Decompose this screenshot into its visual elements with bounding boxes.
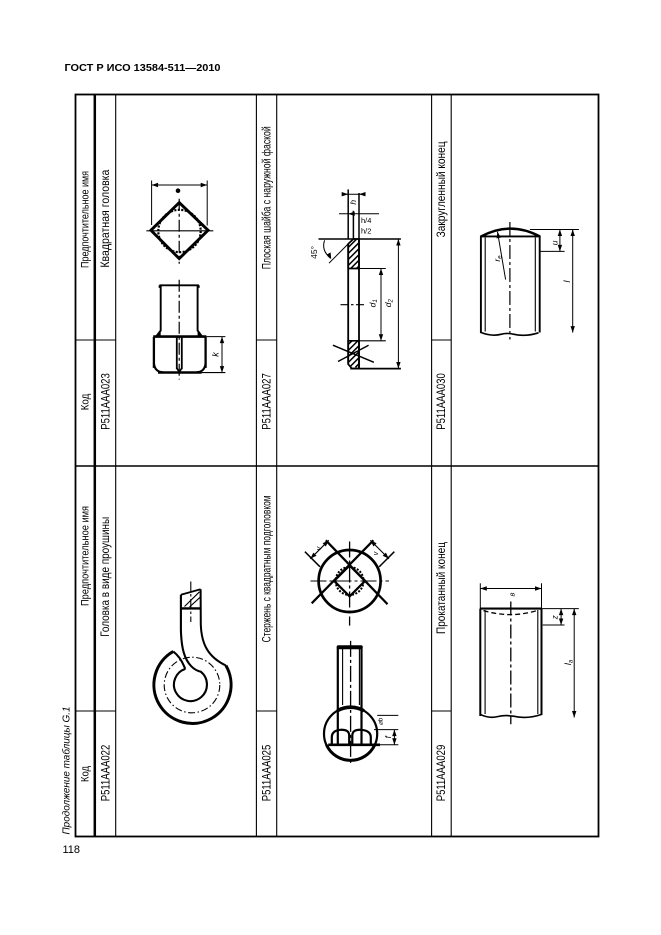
svg-text:118: 118 <box>63 844 81 856</box>
svg-text:Продолжение таблицы G.1: Продолжение таблицы G.1 <box>61 707 73 835</box>
svg-text:v: v <box>373 551 380 555</box>
svg-text:Закругленный конец: Закругленный конец <box>436 141 448 237</box>
svg-text:Стержень с квадратным подголов: Стержень с квадратным подголовком <box>261 495 273 642</box>
svg-text:Код: Код <box>80 393 92 410</box>
svg-text:Плоская шайба с наружной фаско: Плоская шайба с наружной фаской <box>261 126 273 269</box>
svg-text:f: f <box>384 735 393 738</box>
svg-text:P511AAA027: P511AAA027 <box>259 373 273 430</box>
svg-text:Квадратная головка: Квадратная головка <box>100 169 112 268</box>
svg-text:z: z <box>551 615 560 620</box>
svg-text:h: h <box>348 200 358 205</box>
svg-text:re: re <box>492 255 504 262</box>
svg-text:Прокатанный конец: Прокатанный конец <box>436 542 448 634</box>
svg-text:Предпочтительное имя: Предпочтительное имя <box>80 171 92 268</box>
svg-text:d2: d2 <box>383 299 395 308</box>
svg-text:P511AAA029: P511AAA029 <box>434 744 448 801</box>
svg-text:⌀b: ⌀b <box>377 717 384 725</box>
svg-text:Предпочтительное имя: Предпочтительное имя <box>80 506 92 606</box>
svg-text:u: u <box>549 240 559 245</box>
svg-text:d1: d1 <box>368 299 380 307</box>
svg-text:Код: Код <box>80 766 92 782</box>
svg-text:k: k <box>210 352 220 357</box>
svg-text:h/2: h/2 <box>361 226 371 235</box>
svg-text:Головка в виде проушины: Головка в виде проушины <box>100 517 112 637</box>
svg-text:в: в <box>508 592 517 596</box>
svg-text:l: l <box>562 280 572 283</box>
svg-text:h/4: h/4 <box>361 216 371 225</box>
svg-text:ГОСТ Р ИСО 13584-511—2010: ГОСТ Р ИСО 13584-511—2010 <box>65 62 221 74</box>
svg-text:45°: 45° <box>309 246 319 259</box>
svg-text:P511AAA023: P511AAA023 <box>98 373 112 430</box>
svg-text:v: v <box>316 546 323 550</box>
svg-text:P511AAA022: P511AAA022 <box>98 744 112 801</box>
svg-text:P511AAA030: P511AAA030 <box>434 373 448 430</box>
svg-text:la: la <box>563 659 575 665</box>
svg-text:P511AAA025: P511AAA025 <box>259 744 273 801</box>
